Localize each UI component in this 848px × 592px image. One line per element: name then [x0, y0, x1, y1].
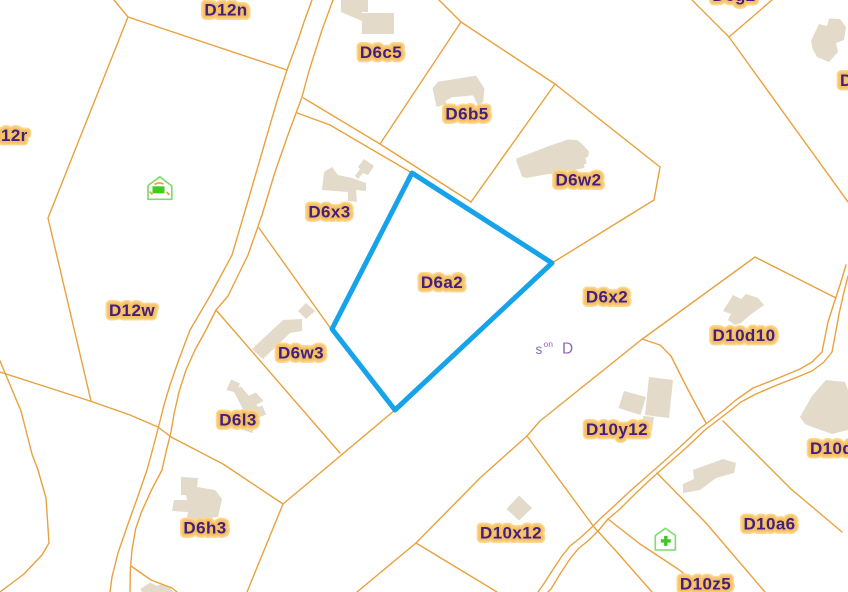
- svg-text:D6w3: D6w3: [278, 344, 324, 363]
- svg-text:D10z5: D10z5: [680, 575, 731, 592]
- svg-text:D6x3: D6x3: [308, 203, 350, 222]
- svg-text:D: D: [562, 341, 573, 358]
- svg-text:D6: D6: [840, 71, 848, 90]
- svg-text:D10a6: D10a6: [743, 515, 795, 534]
- svg-text:D6b5: D6b5: [445, 105, 488, 124]
- svg-text:D12r: D12r: [0, 126, 28, 145]
- svg-text:D10d10: D10d10: [713, 326, 776, 345]
- svg-text:D6h3: D6h3: [183, 519, 226, 538]
- svg-text:on: on: [544, 339, 554, 349]
- svg-text:D6g2: D6g2: [712, 0, 755, 5]
- svg-text:D12w: D12w: [109, 301, 155, 320]
- svg-text:D10y12: D10y12: [586, 420, 648, 439]
- svg-text:D6a2: D6a2: [421, 273, 463, 292]
- svg-text:s: s: [536, 342, 543, 357]
- svg-text:D6l3: D6l3: [219, 411, 257, 430]
- svg-text:D10x12: D10x12: [480, 524, 542, 543]
- svg-text:D12n: D12n: [204, 1, 247, 20]
- svg-text:D6c5: D6c5: [360, 43, 402, 62]
- svg-text:D10d: D10d: [810, 439, 848, 458]
- svg-text:D6x2: D6x2: [586, 288, 628, 307]
- svg-text:D6w2: D6w2: [555, 171, 601, 190]
